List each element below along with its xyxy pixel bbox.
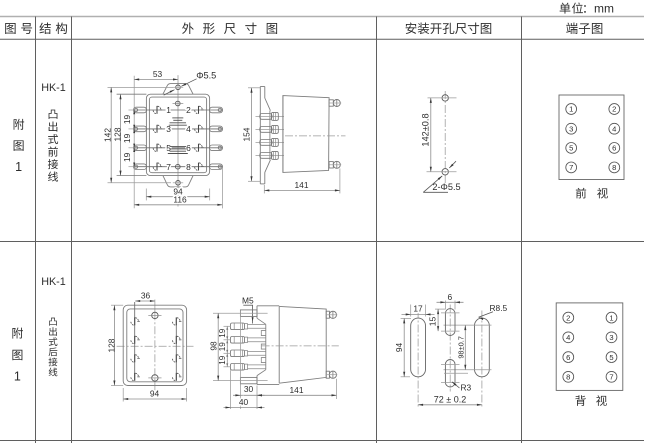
- svg-text:19: 19: [122, 152, 132, 162]
- svg-text:R8.5: R8.5: [490, 303, 508, 313]
- svg-text:40: 40: [239, 397, 249, 407]
- svg-text:mm: mm: [594, 1, 614, 15]
- svg-text:1: 1: [15, 160, 22, 174]
- svg-text:72 ± 0.2: 72 ± 0.2: [434, 394, 466, 404]
- svg-text:98: 98: [208, 341, 218, 351]
- svg-text:154: 154: [241, 127, 251, 141]
- svg-text:141: 141: [295, 180, 309, 190]
- svg-text:36: 36: [141, 291, 151, 301]
- svg-text:17: 17: [413, 303, 423, 313]
- svg-text:19: 19: [122, 115, 132, 125]
- svg-text:7: 7: [166, 162, 171, 172]
- svg-text:141: 141: [290, 385, 304, 395]
- svg-text:8: 8: [612, 163, 616, 172]
- svg-text:2-Φ5.5: 2-Φ5.5: [432, 182, 460, 192]
- svg-text:94: 94: [150, 389, 160, 399]
- svg-text:53: 53: [153, 69, 163, 79]
- svg-text:7: 7: [569, 163, 573, 172]
- svg-text:1: 1: [609, 313, 613, 322]
- svg-text:15: 15: [428, 317, 438, 327]
- svg-text:30: 30: [244, 384, 254, 394]
- svg-text:19: 19: [218, 328, 227, 338]
- svg-text:1: 1: [569, 105, 573, 114]
- svg-text:HK-1: HK-1: [41, 82, 66, 94]
- svg-text:2: 2: [612, 105, 616, 114]
- svg-text:142: 142: [103, 128, 113, 142]
- svg-text:98±0.7: 98±0.7: [457, 336, 466, 359]
- svg-text:M5: M5: [242, 295, 254, 305]
- svg-text:Φ5.5: Φ5.5: [196, 70, 216, 80]
- svg-text:6: 6: [447, 292, 452, 302]
- svg-text:6: 6: [612, 144, 616, 153]
- svg-text:1: 1: [166, 105, 171, 115]
- svg-text:4: 4: [186, 124, 191, 134]
- svg-text:5: 5: [609, 353, 613, 362]
- svg-text:8: 8: [186, 162, 191, 172]
- svg-text:6: 6: [566, 353, 570, 362]
- svg-text:19: 19: [218, 355, 227, 365]
- svg-text:142±0.8: 142±0.8: [421, 113, 431, 146]
- svg-text:3: 3: [569, 124, 573, 133]
- svg-text:2: 2: [566, 313, 570, 322]
- svg-text:94: 94: [394, 343, 404, 353]
- svg-text:4: 4: [612, 124, 616, 133]
- svg-text:19: 19: [122, 133, 132, 143]
- svg-text:6: 6: [186, 143, 191, 153]
- svg-text:1: 1: [14, 370, 21, 384]
- svg-text:7: 7: [609, 373, 613, 382]
- svg-text:4: 4: [566, 333, 570, 342]
- svg-text:128: 128: [106, 338, 116, 352]
- svg-text:R3: R3: [461, 383, 472, 393]
- svg-text:116: 116: [173, 195, 187, 205]
- svg-text:2: 2: [186, 105, 191, 115]
- svg-text:8: 8: [566, 373, 570, 382]
- svg-text:HK-1: HK-1: [41, 276, 66, 288]
- svg-text:5: 5: [569, 144, 573, 153]
- svg-text:3: 3: [609, 333, 613, 342]
- svg-text:19: 19: [218, 342, 227, 352]
